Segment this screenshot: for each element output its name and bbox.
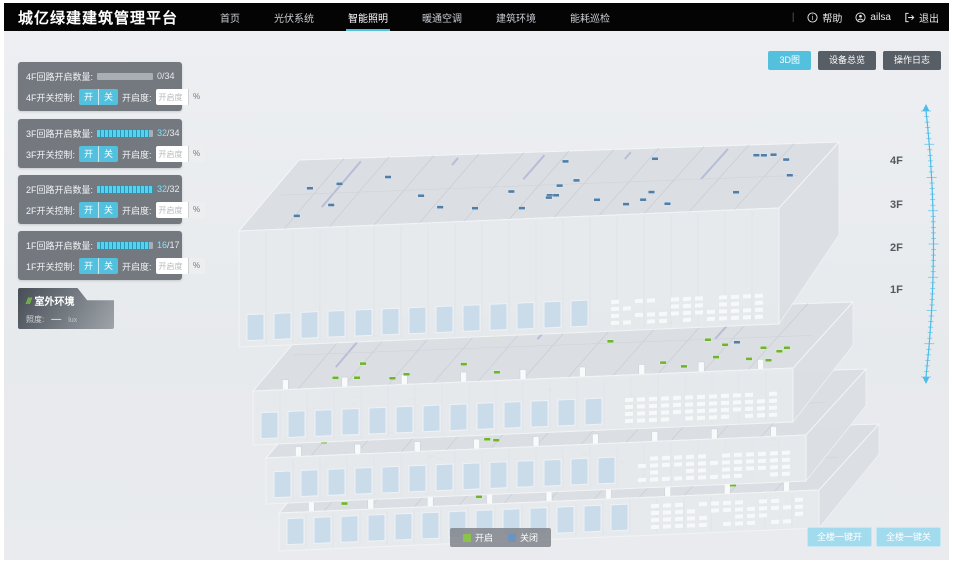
logout-icon bbox=[904, 12, 915, 23]
legend-item-0: 开启 bbox=[463, 531, 493, 544]
switch-off-button[interactable]: 关 bbox=[99, 202, 118, 218]
legend-label-0: 开启 bbox=[475, 531, 493, 544]
illuminance-value: — bbox=[51, 314, 61, 325]
main-content: 4F回路开启数量: 0/34 4F开关控制: 开 关 开启度: % 3F回路开启… bbox=[4, 31, 949, 560]
switch-row: 3F开关控制: 开 关 开启度: % bbox=[26, 146, 174, 162]
illuminance-label: 照度: bbox=[26, 314, 44, 325]
app-frame: 城亿绿建建筑管理平台 首页光伏系统智能照明暖通空调建筑环境能耗巡检 | i 帮助… bbox=[4, 3, 949, 560]
building-3d-view[interactable] bbox=[225, 91, 895, 560]
user-name: ailsa bbox=[870, 12, 891, 23]
user-icon bbox=[855, 12, 866, 23]
switch-group: 开 关 bbox=[79, 146, 118, 162]
help-button[interactable]: i 帮助 bbox=[807, 10, 842, 25]
circuit-progress-bar bbox=[97, 130, 153, 137]
percent-button[interactable]: % bbox=[188, 146, 205, 162]
nav-item-1[interactable]: 光伏系统 bbox=[272, 3, 316, 31]
switch-on-button[interactable]: 开 bbox=[79, 258, 99, 274]
bulk-actions: 全楼一键开全楼一键关 bbox=[807, 527, 941, 547]
switch-row: 1F开关控制: 开 关 开启度: % bbox=[26, 258, 174, 274]
dim-level-input[interactable] bbox=[156, 146, 188, 162]
legend: 开启关闭 bbox=[450, 528, 551, 547]
switch-control-label: 1F开关控制: bbox=[26, 260, 75, 273]
dim-input-group: % bbox=[156, 258, 205, 274]
floor-control-panel-4f: 4F回路开启数量: 0/34 4F开关控制: 开 关 开启度: % bbox=[18, 62, 182, 111]
view-button-2[interactable]: 操作日志 bbox=[883, 51, 941, 70]
help-label: 帮助 bbox=[822, 10, 842, 25]
nav-item-3[interactable]: 暖通空调 bbox=[420, 3, 464, 31]
dim-level-label: 开启度: bbox=[122, 260, 152, 273]
switch-control-label: 3F开关控制: bbox=[26, 148, 75, 161]
percent-button[interactable]: % bbox=[188, 258, 205, 274]
top-nav-bar: 城亿绿建建筑管理平台 首页光伏系统智能照明暖通空调建筑环境能耗巡检 | i 帮助… bbox=[4, 3, 949, 31]
outdoor-environment-panel: /// 室外环境 照度: — lux bbox=[18, 288, 114, 329]
logout-button[interactable]: 退出 bbox=[904, 10, 939, 25]
app-title: 城亿绿建建筑管理平台 bbox=[18, 7, 178, 28]
circuit-progress-bar bbox=[97, 242, 153, 249]
switch-on-button[interactable]: 开 bbox=[79, 146, 99, 162]
view-button-1[interactable]: 设备总览 bbox=[818, 51, 876, 70]
legend-label-1: 关闭 bbox=[520, 531, 538, 544]
view-button-0[interactable]: 3D图 bbox=[768, 51, 811, 70]
dim-level-label: 开启度: bbox=[122, 91, 152, 104]
user-menu[interactable]: ailsa bbox=[855, 12, 891, 23]
floor-control-panel-1f: 1F回路开启数量: 16/17 1F开关控制: 开 关 开启度: % bbox=[18, 231, 182, 280]
switch-group: 开 关 bbox=[79, 258, 118, 274]
bulk-button-1[interactable]: 全楼一键关 bbox=[876, 527, 941, 547]
dim-level-input[interactable] bbox=[156, 258, 188, 274]
switch-off-button[interactable]: 关 bbox=[99, 146, 118, 162]
help-icon: i bbox=[807, 12, 818, 23]
dim-input-group: % bbox=[156, 89, 205, 105]
circuit-count-row: 4F回路开启数量: 0/34 bbox=[26, 68, 174, 84]
switch-off-button[interactable]: 关 bbox=[99, 258, 118, 274]
illuminance-unit: lux bbox=[68, 317, 77, 324]
circuit-count-row: 2F回路开启数量: 32/32 bbox=[26, 181, 174, 197]
switch-control-label: 2F开关控制: bbox=[26, 204, 75, 217]
logout-label: 退出 bbox=[919, 10, 939, 25]
switch-row: 4F开关控制: 开 关 开启度: % bbox=[26, 89, 174, 105]
nav-item-4[interactable]: 建筑环境 bbox=[494, 3, 538, 31]
switch-control-label: 4F开关控制: bbox=[26, 91, 75, 104]
topbar-divider: | bbox=[792, 12, 795, 23]
circuit-count-label: 2F回路开启数量: bbox=[26, 183, 93, 196]
view-toolbar: 3D图设备总览操作日志 bbox=[768, 51, 941, 70]
circuit-count-value: 32/32 bbox=[157, 184, 180, 194]
circuit-count-value: 0/34 bbox=[157, 71, 175, 81]
circuit-count-label: 3F回路开启数量: bbox=[26, 127, 93, 140]
outdoor-title-row: /// 室外环境 bbox=[26, 293, 106, 308]
main-nav: 首页光伏系统智能照明暖通空调建筑环境能耗巡检 bbox=[218, 3, 612, 31]
legend-swatch-1 bbox=[508, 534, 516, 542]
dim-level-label: 开启度: bbox=[122, 204, 152, 217]
switch-off-button[interactable]: 关 bbox=[99, 89, 118, 105]
circuit-progress-bar bbox=[97, 73, 153, 80]
floor-label-2f: 2F bbox=[890, 242, 903, 254]
floor-label-3f: 3F bbox=[890, 199, 903, 211]
percent-button[interactable]: % bbox=[188, 202, 205, 218]
circuit-progress-bar bbox=[97, 186, 153, 193]
circuit-count-row: 1F回路开启数量: 16/17 bbox=[26, 237, 174, 253]
dim-level-input[interactable] bbox=[156, 89, 188, 105]
switch-on-button[interactable]: 开 bbox=[79, 202, 99, 218]
outdoor-metric-row: 照度: — lux bbox=[26, 314, 106, 325]
circuit-count-label: 4F回路开启数量: bbox=[26, 70, 93, 83]
dim-input-group: % bbox=[156, 202, 205, 218]
switch-row: 2F开关控制: 开 关 开启度: % bbox=[26, 202, 174, 218]
circuit-count-label: 1F回路开启数量: bbox=[26, 239, 93, 252]
bulk-button-0[interactable]: 全楼一键开 bbox=[807, 527, 872, 547]
floor-control-panel-3f: 3F回路开启数量: 32/34 3F开关控制: 开 关 开启度: % bbox=[18, 119, 182, 168]
floor-control-panel-2f: 2F回路开启数量: 32/32 2F开关控制: 开 关 开启度: % bbox=[18, 175, 182, 224]
topbar-right: | i 帮助 ailsa bbox=[792, 10, 939, 25]
circuit-count-value: 32/34 bbox=[157, 128, 180, 138]
svg-text:i: i bbox=[812, 14, 814, 21]
curved-scale-ruler bbox=[909, 103, 945, 393]
dim-input-group: % bbox=[156, 146, 205, 162]
dim-level-label: 开启度: bbox=[122, 148, 152, 161]
legend-item-1: 关闭 bbox=[508, 531, 538, 544]
switch-group: 开 关 bbox=[79, 89, 118, 105]
percent-button[interactable]: % bbox=[188, 89, 205, 105]
nav-item-2[interactable]: 智能照明 bbox=[346, 3, 390, 31]
nav-item-5[interactable]: 能耗巡检 bbox=[568, 3, 612, 31]
nav-item-0[interactable]: 首页 bbox=[218, 3, 242, 31]
switch-group: 开 关 bbox=[79, 202, 118, 218]
dim-level-input[interactable] bbox=[156, 202, 188, 218]
floor-label-4f: 4F bbox=[890, 155, 903, 167]
legend-swatch-0 bbox=[463, 534, 471, 542]
floor-label-1f: 1F bbox=[890, 284, 903, 296]
circuit-count-row: 3F回路开启数量: 32/34 bbox=[26, 125, 174, 141]
outdoor-title: 室外环境 bbox=[35, 293, 75, 308]
outdoor-slashes-icon: /// bbox=[26, 296, 31, 306]
switch-on-button[interactable]: 开 bbox=[79, 89, 99, 105]
circuit-count-value: 16/17 bbox=[157, 240, 180, 250]
